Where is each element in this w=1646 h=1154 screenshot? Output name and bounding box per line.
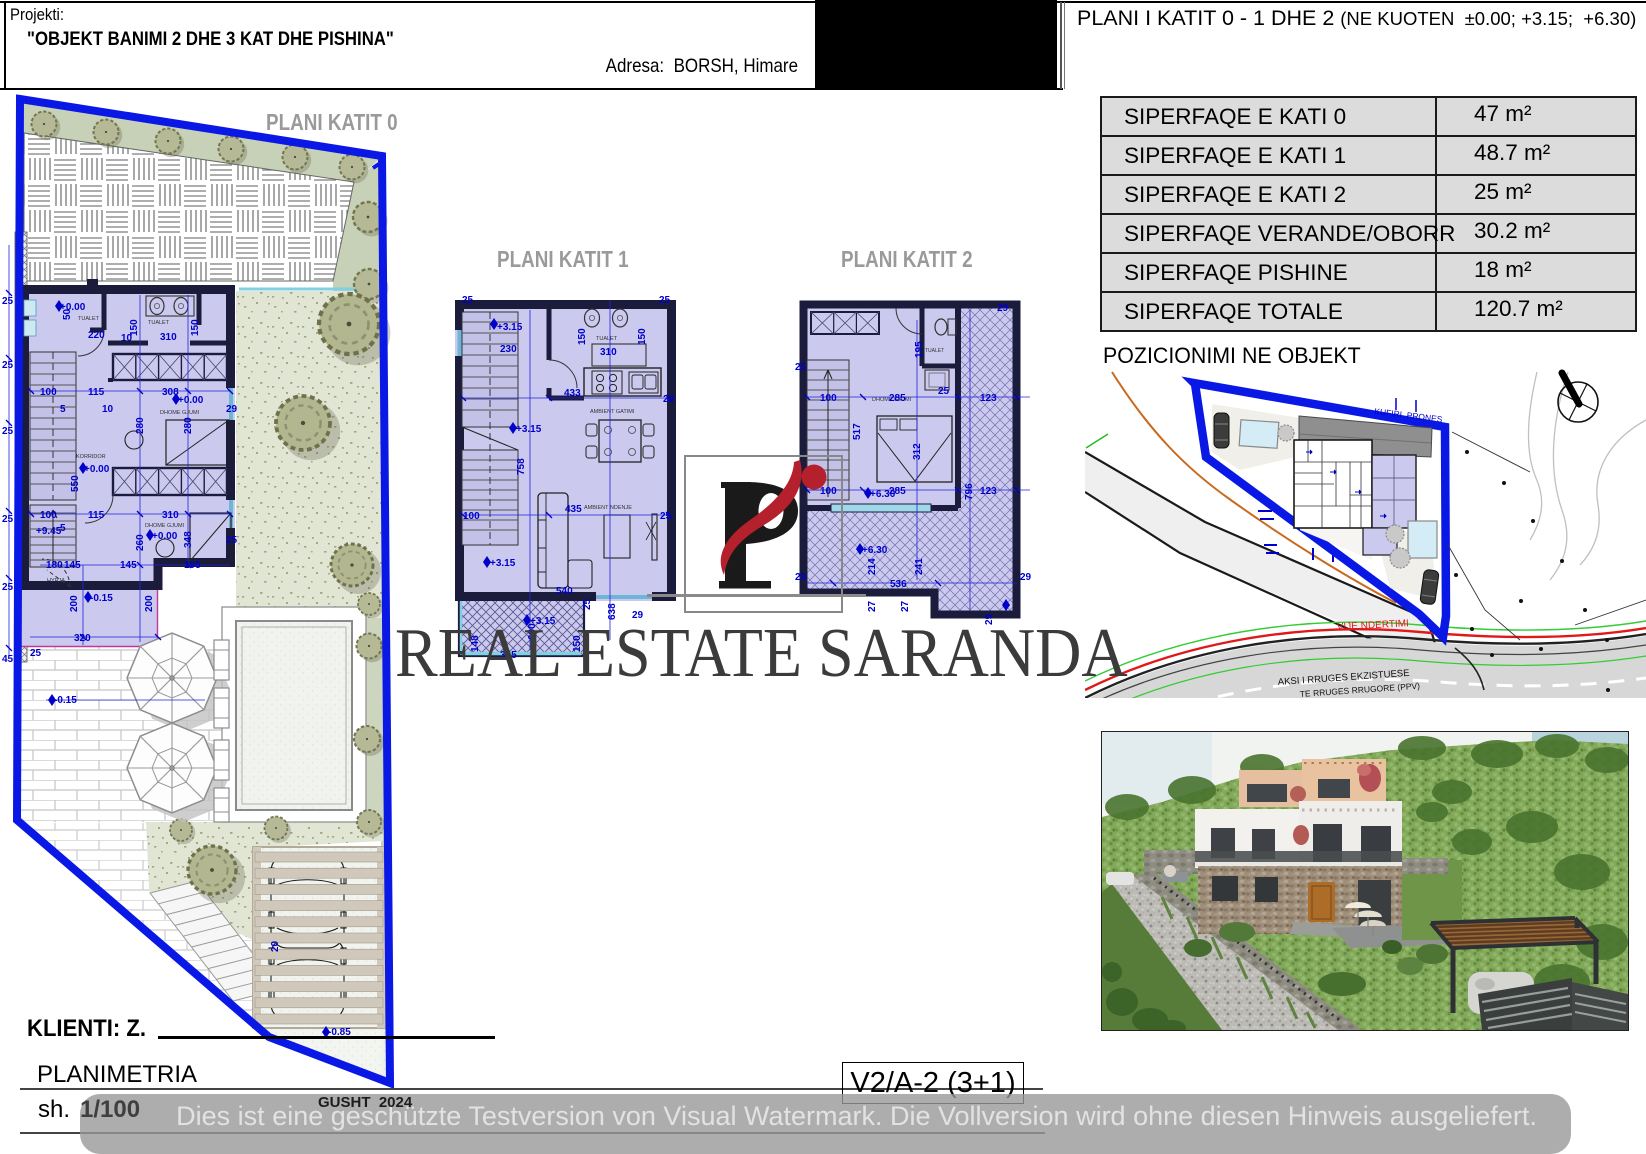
svg-text:310: 310 bbox=[162, 510, 179, 521]
svg-text:220: 220 bbox=[88, 330, 105, 341]
svg-text:433: 433 bbox=[564, 388, 581, 399]
svg-text:150: 150 bbox=[637, 328, 648, 345]
svg-text:AMBIENT NDENJE: AMBIENT NDENJE bbox=[584, 505, 632, 511]
svg-text:310: 310 bbox=[600, 347, 617, 358]
svg-text:50: 50 bbox=[62, 308, 73, 320]
svg-text:5: 5 bbox=[60, 523, 66, 534]
svg-text:123: 123 bbox=[980, 393, 997, 404]
svg-text:150: 150 bbox=[129, 319, 140, 336]
svg-text:25: 25 bbox=[2, 514, 14, 525]
svg-text:100: 100 bbox=[820, 393, 837, 404]
svg-text:25: 25 bbox=[2, 360, 14, 371]
svg-text:45: 45 bbox=[2, 654, 14, 665]
svg-text:310: 310 bbox=[160, 332, 177, 343]
svg-text:25: 25 bbox=[226, 535, 238, 546]
svg-text:+6.30: +6.30 bbox=[862, 545, 888, 556]
svg-text:348: 348 bbox=[183, 531, 194, 548]
svg-text:+0.00: +0.00 bbox=[152, 531, 178, 542]
svg-text:25: 25 bbox=[659, 295, 671, 306]
svg-text:TUALET: TUALET bbox=[148, 320, 170, 326]
svg-text:27: 27 bbox=[867, 600, 878, 612]
svg-text:145: 145 bbox=[120, 560, 137, 571]
svg-text:517: 517 bbox=[852, 423, 863, 440]
svg-text:TUALET: TUALET bbox=[596, 336, 618, 342]
svg-text:25: 25 bbox=[2, 296, 14, 307]
svg-text:796: 796 bbox=[964, 483, 975, 500]
svg-text:HYRJA: HYRJA bbox=[47, 578, 65, 584]
svg-text:+3.15: +3.15 bbox=[490, 558, 516, 569]
svg-text:DHOME GJUMI: DHOME GJUMI bbox=[160, 410, 200, 416]
svg-text:320: 320 bbox=[74, 633, 91, 644]
svg-text:-0.15: -0.15 bbox=[54, 695, 77, 706]
svg-text:-0.15: -0.15 bbox=[90, 593, 113, 604]
svg-text:29: 29 bbox=[997, 303, 1009, 314]
svg-text:+0.00: +0.00 bbox=[178, 395, 204, 406]
svg-text:435: 435 bbox=[565, 504, 582, 515]
svg-text:195: 195 bbox=[184, 560, 201, 571]
svg-text:29: 29 bbox=[663, 394, 675, 405]
svg-text:230: 230 bbox=[500, 344, 517, 355]
svg-text:241: 241 bbox=[914, 558, 925, 575]
svg-text:150: 150 bbox=[577, 328, 588, 345]
svg-text:25: 25 bbox=[2, 582, 14, 593]
svg-text:115: 115 bbox=[88, 510, 105, 521]
svg-text:280: 280 bbox=[183, 417, 194, 434]
svg-text:29: 29 bbox=[1020, 572, 1032, 583]
svg-text:KORRIDOR: KORRIDOR bbox=[76, 454, 106, 460]
svg-text:180: 180 bbox=[46, 560, 63, 571]
svg-text:10: 10 bbox=[102, 404, 114, 415]
svg-text:25: 25 bbox=[30, 648, 42, 659]
svg-text:+0.00: +0.00 bbox=[84, 464, 110, 475]
svg-text:540: 540 bbox=[556, 586, 573, 597]
svg-text:AMBIENT GATIMI: AMBIENT GATIMI bbox=[590, 409, 635, 415]
svg-text:+6.30: +6.30 bbox=[870, 489, 896, 500]
svg-text:DHOME GJUMI: DHOME GJUMI bbox=[145, 523, 185, 529]
svg-text:115: 115 bbox=[88, 387, 105, 398]
svg-text:25: 25 bbox=[938, 386, 950, 397]
svg-text:+3.15: +3.15 bbox=[516, 424, 542, 435]
svg-text:25: 25 bbox=[2, 426, 14, 437]
svg-text:280: 280 bbox=[135, 417, 146, 434]
svg-text:123: 123 bbox=[980, 486, 997, 497]
svg-text:100: 100 bbox=[40, 510, 57, 521]
svg-text:5: 5 bbox=[60, 404, 66, 415]
svg-text:550: 550 bbox=[70, 475, 81, 492]
svg-text:+9.45: +9.45 bbox=[36, 526, 62, 537]
svg-text:200: 200 bbox=[144, 595, 155, 612]
svg-text:25: 25 bbox=[582, 598, 593, 610]
svg-text:29: 29 bbox=[226, 404, 238, 415]
svg-text:536: 536 bbox=[890, 579, 907, 590]
svg-text:TUALET: TUALET bbox=[925, 348, 944, 354]
svg-text:25: 25 bbox=[795, 362, 807, 373]
svg-text:312: 312 bbox=[912, 443, 923, 460]
svg-text:214: 214 bbox=[867, 558, 878, 575]
svg-text:758: 758 bbox=[516, 458, 527, 475]
svg-text:100: 100 bbox=[463, 511, 480, 522]
svg-text:20: 20 bbox=[270, 940, 281, 952]
svg-text:27: 27 bbox=[900, 600, 911, 612]
svg-text:150: 150 bbox=[190, 319, 201, 336]
svg-text:TUALET: TUALET bbox=[78, 316, 100, 322]
svg-text:285: 285 bbox=[889, 393, 906, 404]
svg-text:25: 25 bbox=[462, 295, 474, 306]
svg-text:100: 100 bbox=[40, 387, 57, 398]
svg-text:260: 260 bbox=[135, 534, 146, 551]
svg-text:145: 145 bbox=[64, 560, 81, 571]
svg-text:200: 200 bbox=[69, 595, 80, 612]
svg-text:+3.15: +3.15 bbox=[497, 322, 523, 333]
svg-text:195: 195 bbox=[914, 341, 925, 358]
